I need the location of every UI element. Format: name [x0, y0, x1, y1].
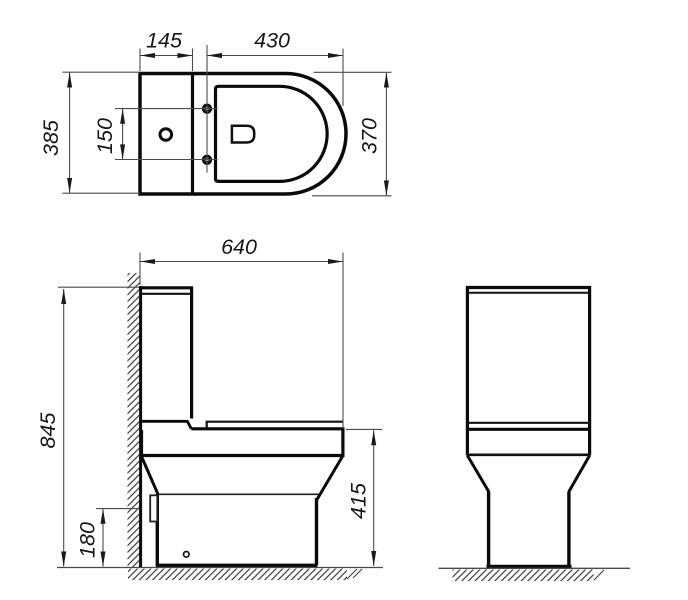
- svg-text:370: 370: [358, 118, 382, 154]
- svg-text:845: 845: [36, 412, 60, 449]
- svg-text:145: 145: [146, 29, 183, 53]
- svg-text:415: 415: [347, 482, 371, 519]
- svg-text:180: 180: [76, 522, 100, 558]
- svg-text:430: 430: [254, 29, 290, 53]
- svg-text:385: 385: [39, 119, 63, 156]
- svg-text:150: 150: [93, 118, 117, 154]
- svg-text:640: 640: [221, 235, 257, 259]
